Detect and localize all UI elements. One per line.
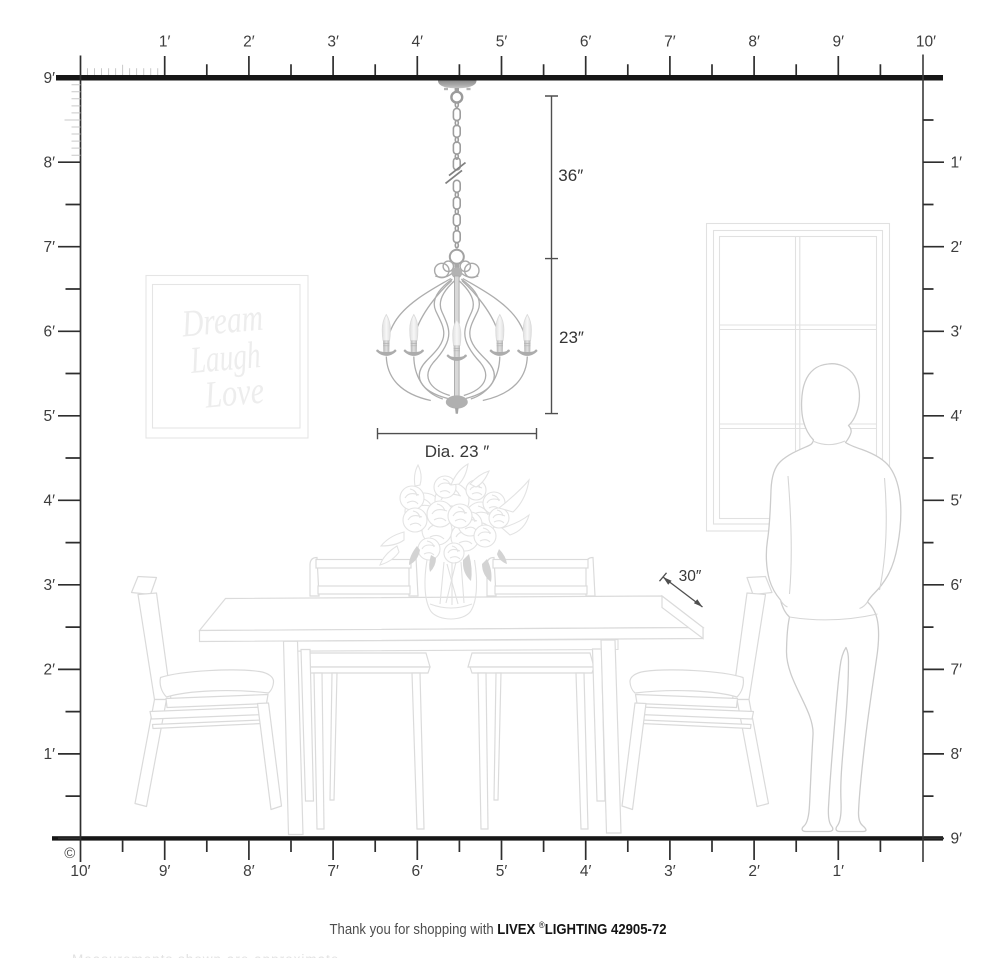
svg-text:1′: 1′ bbox=[159, 34, 171, 51]
svg-text:3′: 3′ bbox=[664, 863, 676, 880]
svg-text:2′: 2′ bbox=[243, 34, 255, 51]
svg-text:8′: 8′ bbox=[748, 34, 760, 51]
svg-text:7′: 7′ bbox=[951, 662, 963, 679]
svg-text:10′: 10′ bbox=[70, 863, 90, 880]
svg-text:9′: 9′ bbox=[833, 34, 845, 51]
svg-text:5′: 5′ bbox=[496, 863, 508, 880]
svg-text:7′: 7′ bbox=[327, 863, 339, 880]
svg-text:©: © bbox=[64, 845, 75, 862]
svg-text:6′: 6′ bbox=[580, 34, 592, 51]
svg-text:9′: 9′ bbox=[43, 70, 55, 87]
svg-text:4′: 4′ bbox=[951, 408, 963, 425]
svg-text:Dia. 23 ″: Dia. 23 ″ bbox=[425, 442, 490, 461]
svg-text:5′: 5′ bbox=[496, 34, 508, 51]
svg-text:10′: 10′ bbox=[916, 34, 936, 51]
svg-text:3′: 3′ bbox=[951, 324, 963, 341]
svg-text:1′: 1′ bbox=[833, 863, 845, 880]
svg-text:5′: 5′ bbox=[951, 493, 963, 510]
svg-text:8′: 8′ bbox=[243, 863, 255, 880]
svg-text:30″: 30″ bbox=[679, 568, 702, 585]
svg-text:Measurements shown are approxi: Measurements shown are approximate bbox=[72, 952, 339, 958]
svg-text:4′: 4′ bbox=[580, 863, 592, 880]
svg-text:6′: 6′ bbox=[43, 324, 55, 341]
svg-text:2′: 2′ bbox=[748, 863, 760, 880]
svg-text:2′: 2′ bbox=[951, 239, 963, 256]
svg-text:1′: 1′ bbox=[43, 746, 55, 763]
svg-text:1′: 1′ bbox=[951, 155, 963, 172]
svg-text:Love: Love bbox=[202, 370, 265, 417]
svg-text:4′: 4′ bbox=[43, 493, 55, 510]
svg-text:9′: 9′ bbox=[951, 831, 963, 848]
svg-text:8′: 8′ bbox=[951, 746, 963, 763]
svg-text:3′: 3′ bbox=[327, 34, 339, 51]
svg-text:7′: 7′ bbox=[664, 34, 676, 51]
svg-text:6′: 6′ bbox=[412, 863, 424, 880]
svg-text:3′: 3′ bbox=[43, 577, 55, 594]
svg-text:8′: 8′ bbox=[43, 155, 55, 172]
svg-text:23″: 23″ bbox=[559, 328, 584, 347]
svg-text:2′: 2′ bbox=[43, 662, 55, 679]
svg-text:Thank you for shopping with LI: Thank you for shopping with LIVEX ®LIGHT… bbox=[330, 920, 667, 938]
svg-text:4′: 4′ bbox=[412, 34, 424, 51]
svg-text:36″: 36″ bbox=[558, 166, 583, 185]
svg-text:5′: 5′ bbox=[43, 408, 55, 425]
svg-text:6′: 6′ bbox=[951, 577, 963, 594]
svg-text:9′: 9′ bbox=[159, 863, 171, 880]
svg-text:7′: 7′ bbox=[43, 239, 55, 256]
